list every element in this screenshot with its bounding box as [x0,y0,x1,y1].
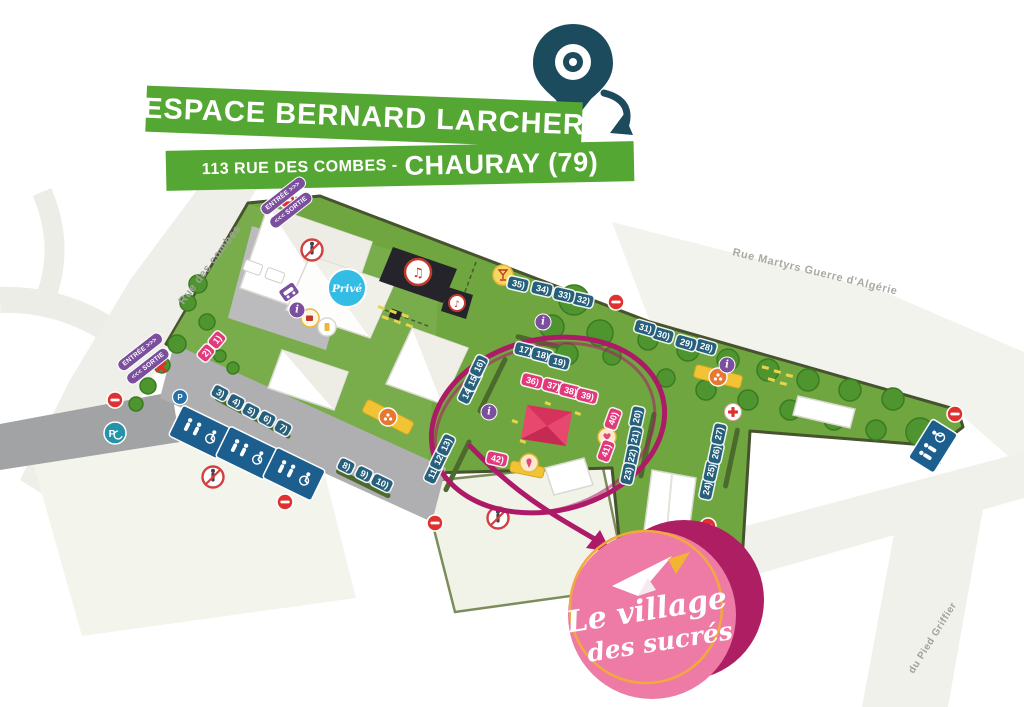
info-icon: i [535,314,552,331]
first-aid-icon [725,404,742,421]
svg-text:P: P [177,393,183,402]
svg-text:♪: ♪ [454,300,460,310]
svg-text:Privé: Privé [331,283,363,295]
svg-text:♫: ♫ [412,266,424,281]
no-entry-icon [947,406,963,422]
stand-number: 33) [557,289,572,302]
stand-number: 20) [631,409,643,424]
stand-number: 25) [705,463,717,478]
stand-number: 22) [626,448,638,463]
stand-number: 32) [576,294,591,307]
no-entry-icon [427,515,443,531]
stand-number: 6) [262,413,274,426]
central-tent [521,405,572,446]
stand-number: 7) [278,422,290,435]
stand-number: 39) [580,390,595,403]
info-icon: i [289,302,306,319]
no-entry-icon [277,494,293,510]
accessible-parking-icon: P [104,422,126,444]
stand-number: 23) [622,466,634,481]
stand-number: 18) [535,349,550,362]
stand-number: 30) [656,329,671,342]
stand-number: 3) [215,387,227,400]
stand-number: 31) [638,322,653,335]
no-pedestrian-icon [203,467,224,488]
road-west-curve [42,192,55,302]
stand-number: 19) [552,356,567,369]
stand-number: 21) [629,429,641,444]
stand-number: 35) [511,278,526,291]
stand-number: 27) [713,426,725,441]
no-entry-icon [608,294,624,310]
site-map: ♫ ♪ [0,0,1024,707]
stand-number: 29) [679,337,694,350]
stand-number: 36) [525,375,540,388]
stand-number: 5) [246,405,258,418]
stand-number: 8) [341,460,353,473]
no-pedestrian-icon [302,240,323,261]
address-city: CHAURAY (79) [404,146,598,181]
stand-number: 24) [701,481,713,496]
stand-number: 34) [535,283,550,296]
stand-number: 4) [231,396,243,409]
info-icon: i [481,404,498,421]
curved-arrow-icon [604,93,633,135]
stand-number: 28) [699,341,714,354]
info-icon: i [719,357,736,374]
private-badge: Privé [328,269,366,307]
icecream-icon [520,454,538,472]
drink-icon [318,318,336,336]
stand-number: 26) [710,445,722,460]
stand-number: 42) [490,453,505,465]
parking-icon: P [173,390,188,405]
stand-number: 9) [359,468,371,481]
pretzel-icon [379,408,397,426]
road-west-branch [0,300,112,332]
no-entry-icon [107,392,123,408]
